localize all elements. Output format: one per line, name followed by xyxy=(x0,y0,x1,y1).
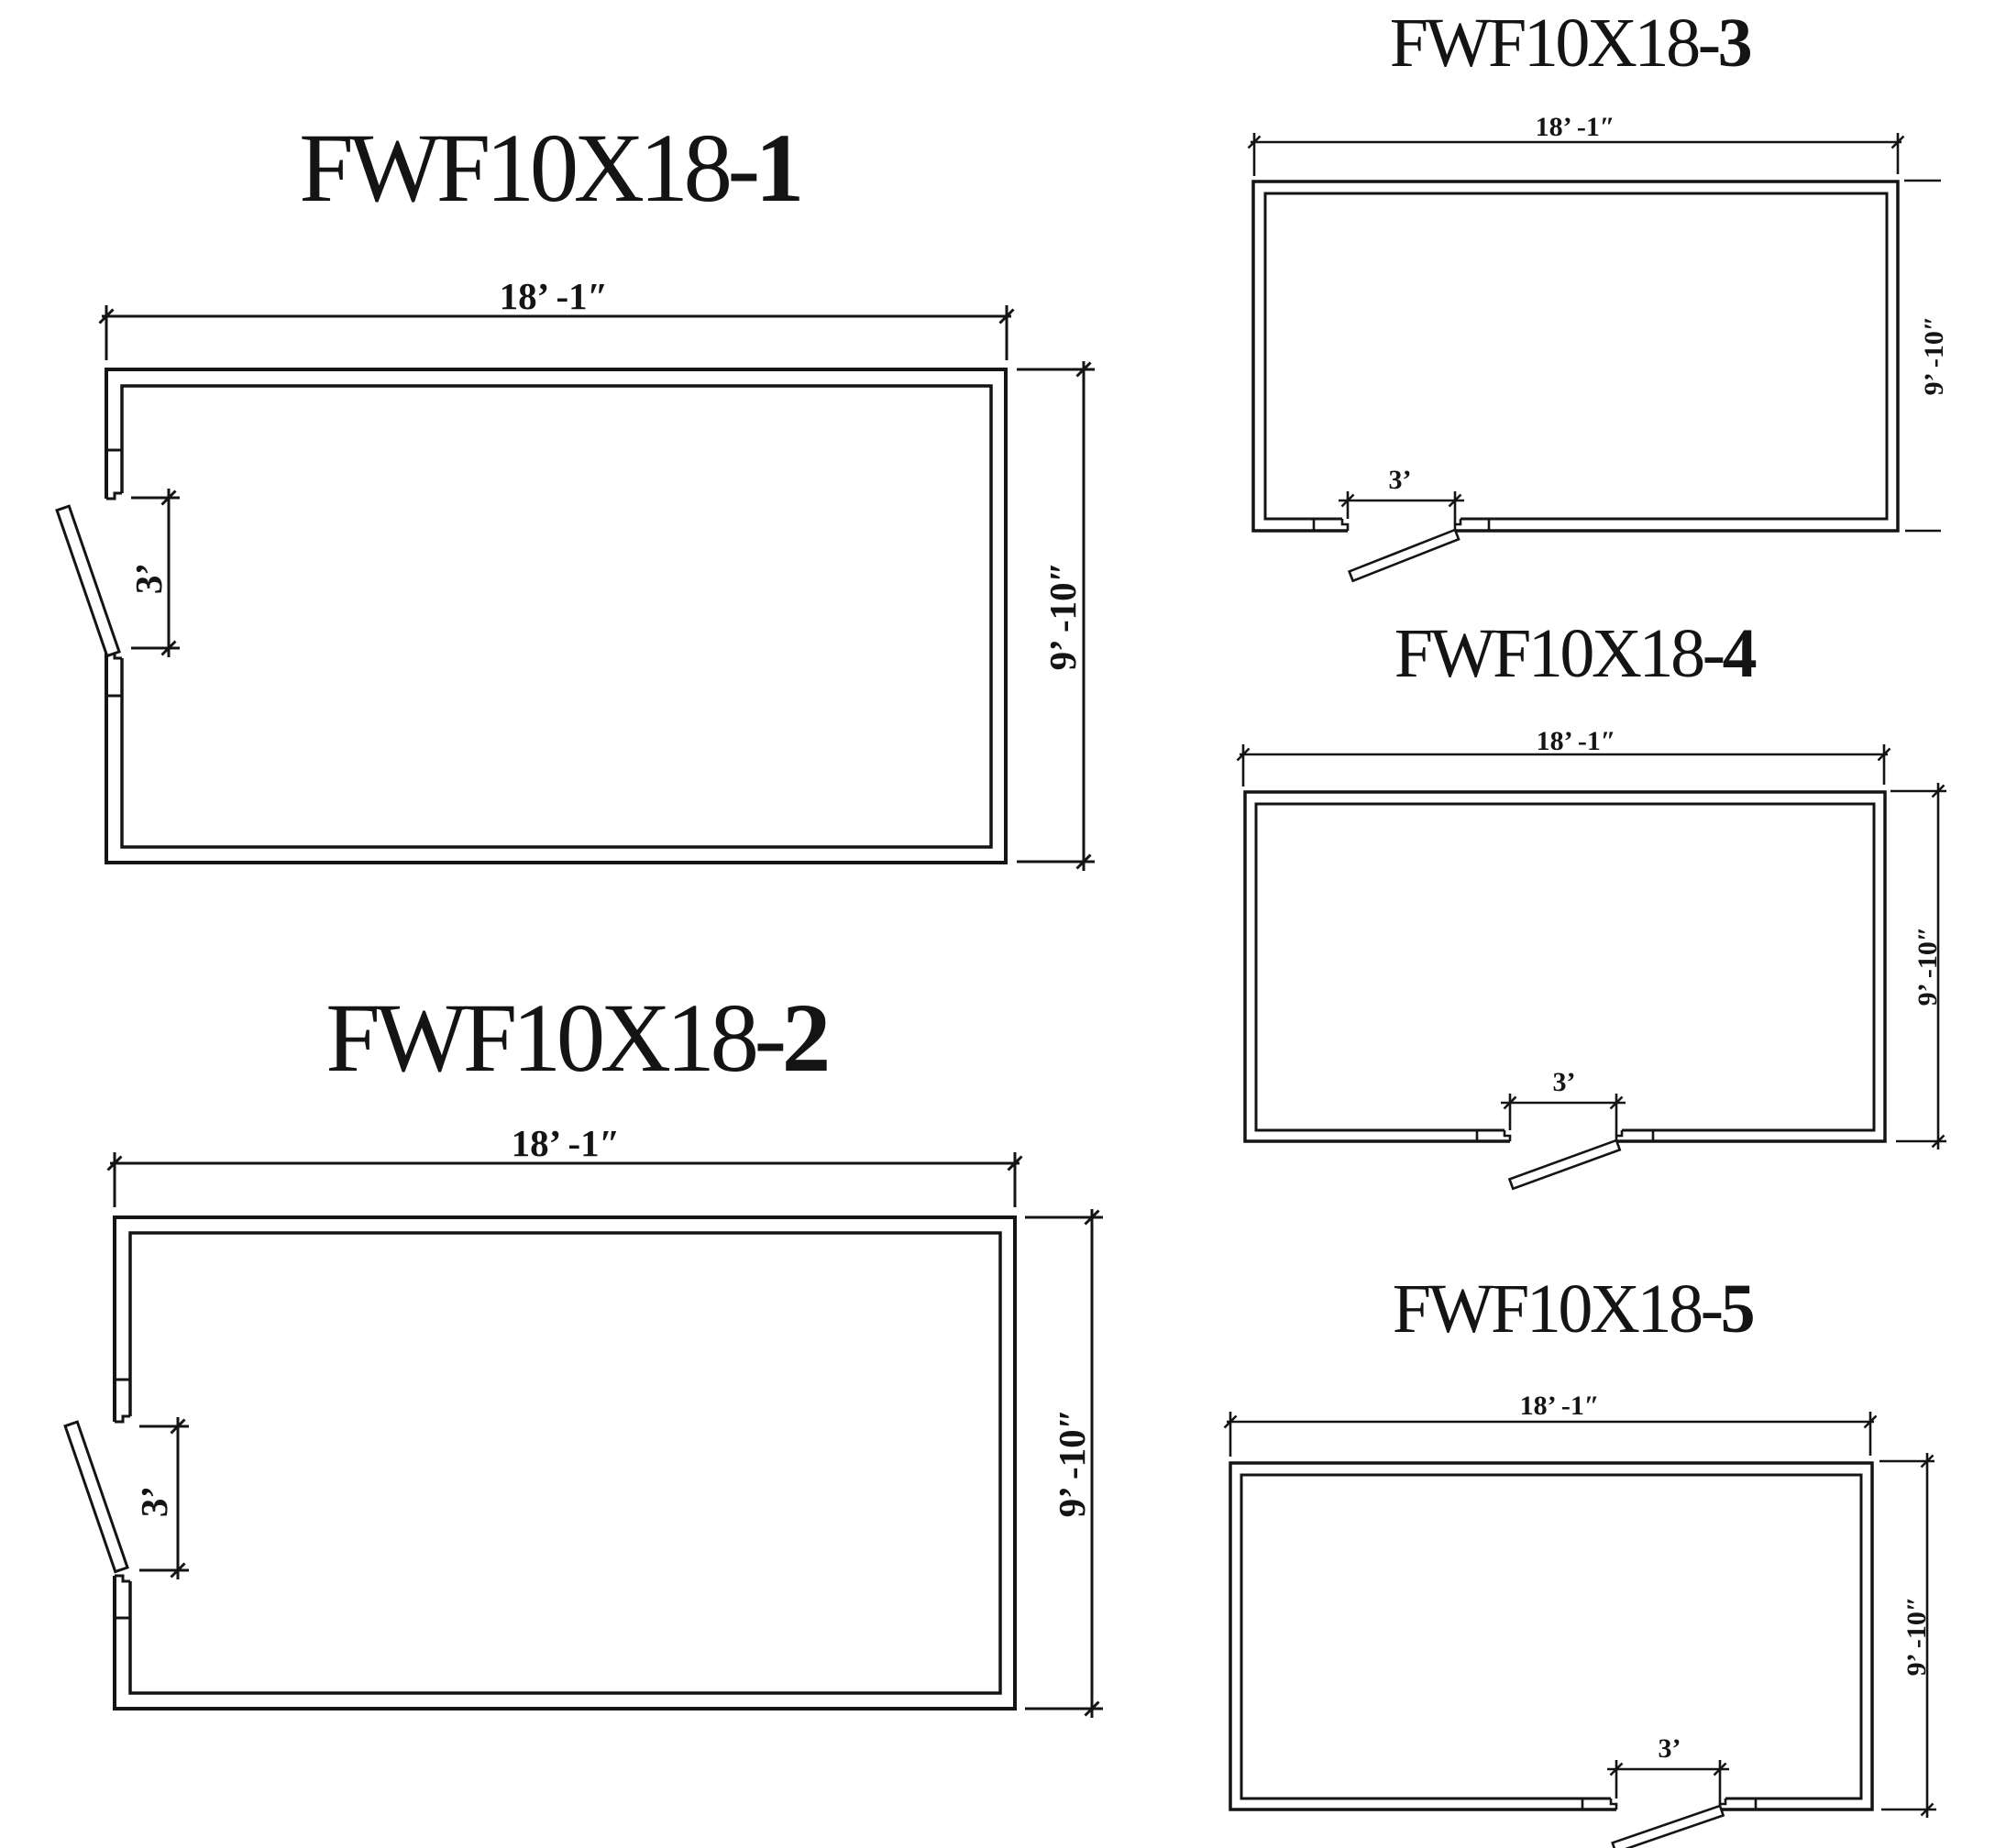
svg-text:18’ -1″: 18’ -1″ xyxy=(1520,1391,1600,1421)
svg-text:18’ -1″: 18’ -1″ xyxy=(1537,726,1616,756)
svg-text:3’: 3’ xyxy=(1659,1733,1681,1764)
svg-text:9’ -10″: 9’ -10″ xyxy=(1901,1597,1932,1677)
svg-text:9’ -10″: 9’ -10″ xyxy=(1919,316,1949,396)
svg-text:FWF10X18-4: FWF10X18-4 xyxy=(1394,615,1757,692)
svg-text:18’ -1″: 18’ -1″ xyxy=(500,275,609,317)
svg-text:FWF10X18-1: FWF10X18-1 xyxy=(299,115,799,223)
svg-text:9’ -10″: 9’ -10″ xyxy=(1051,1409,1093,1518)
svg-text:FWF10X18-3: FWF10X18-3 xyxy=(1390,5,1751,82)
svg-text:FWF10X18-5: FWF10X18-5 xyxy=(1393,1270,1754,1347)
svg-text:18’ -1″: 18’ -1″ xyxy=(1536,112,1615,142)
svg-text:9’ -10″: 9’ -10″ xyxy=(1042,562,1084,671)
svg-text:18’ -1″: 18’ -1″ xyxy=(512,1122,621,1164)
svg-text:FWF10X18-2: FWF10X18-2 xyxy=(325,984,826,1093)
svg-text:9’ -10″: 9’ -10″ xyxy=(1912,927,1943,1006)
svg-text:3’: 3’ xyxy=(133,1486,175,1517)
svg-text:3’: 3’ xyxy=(1553,1067,1576,1097)
svg-text:3’: 3’ xyxy=(127,563,170,594)
svg-text:3’: 3’ xyxy=(1389,465,1412,495)
